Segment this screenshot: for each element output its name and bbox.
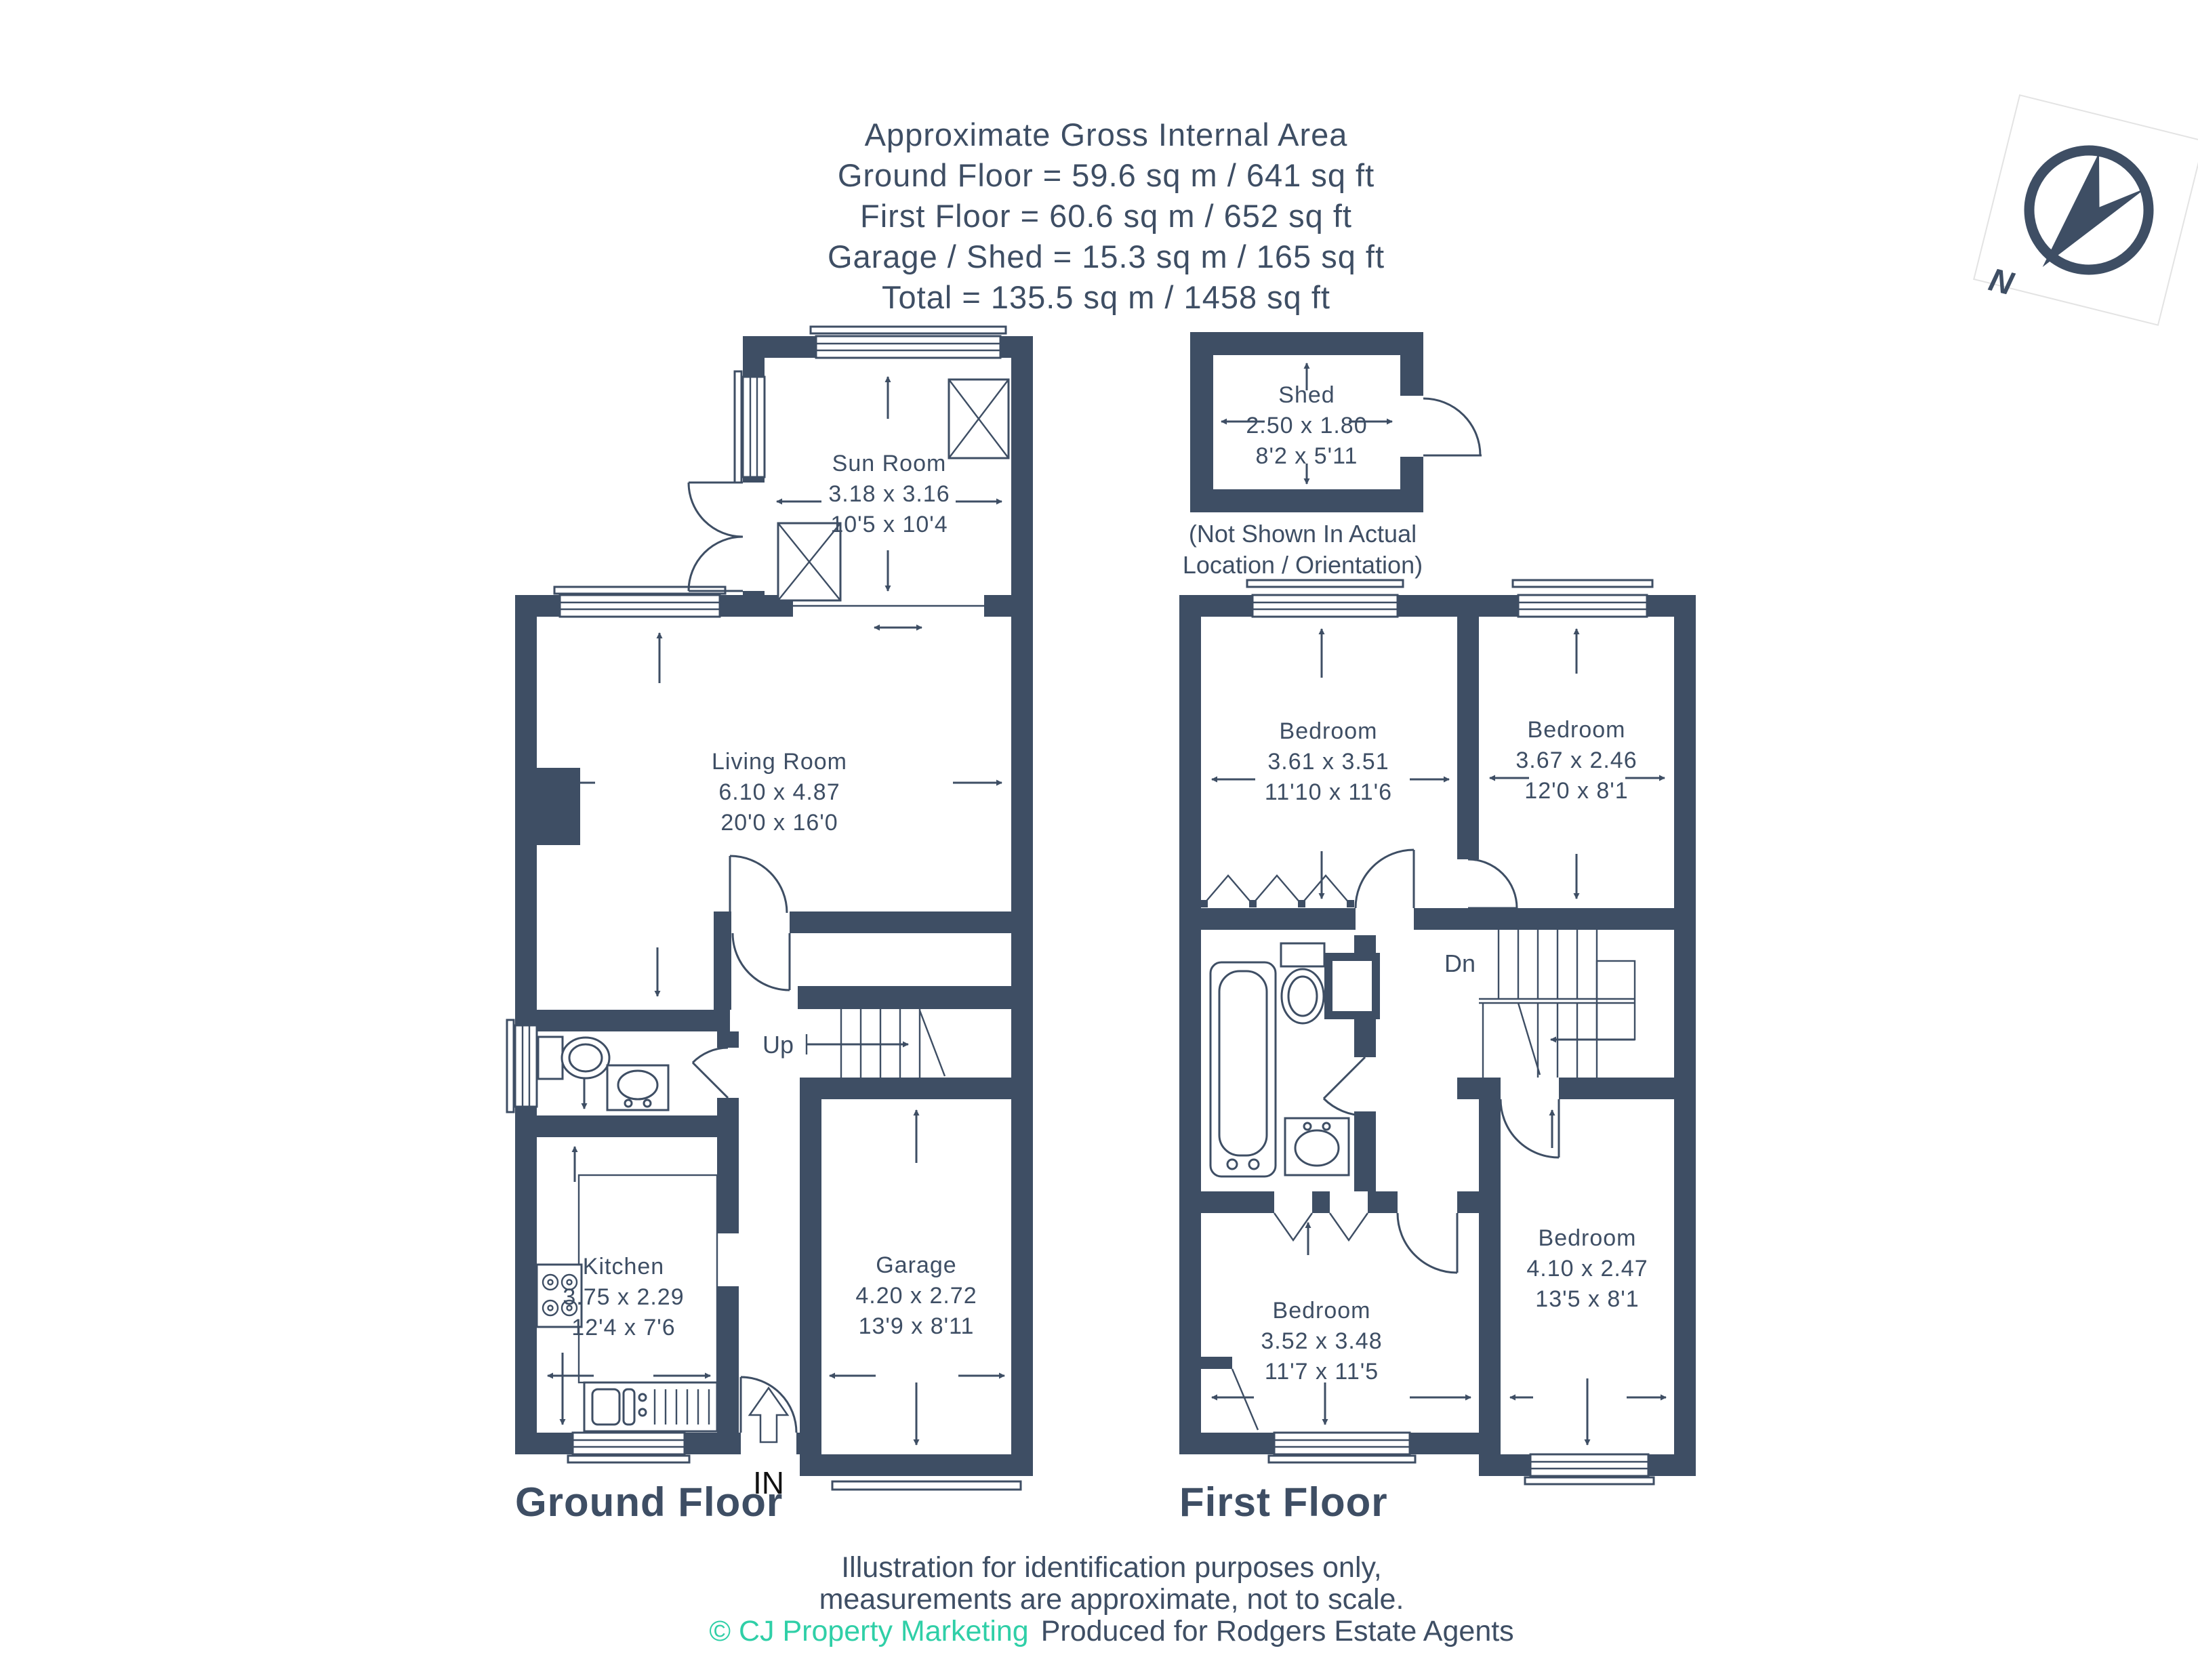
shed-dim-metric: 2.50 x 1.80	[1246, 413, 1367, 438]
toilet-icon	[538, 1037, 609, 1079]
floorplan-drawing: Approximate Gross Internal Area Ground F…	[0, 0, 2198, 1680]
shed-door-gap	[1400, 396, 1423, 457]
footer-disclaimer-line2: measurements are approximate, not to sca…	[819, 1583, 1404, 1616]
bathroom-sink-icon	[1285, 1118, 1349, 1175]
floorplan-page: Approximate Gross Internal Area Ground F…	[0, 0, 2198, 1680]
bedroom2-name: Bedroom	[1528, 717, 1626, 743]
first-floor-plan: Dn	[1179, 580, 1696, 1525]
header-garage-area: Garage / Shed = 15.3 sq m / 165 sq ft	[828, 239, 1385, 274]
bedroom3-dim-metric: 3.52 x 3.48	[1261, 1328, 1382, 1354]
bedroom2-window	[1513, 580, 1652, 617]
bedroom3-dim-imperial: 11'7 x 11'5	[1265, 1359, 1379, 1385]
shed-dim-imperial: 8'2 x 5'11	[1256, 443, 1358, 469]
bedroom3-door-arc	[1398, 1213, 1457, 1273]
bedroom1-door-arc	[1356, 850, 1414, 908]
shed-note-line2: Location / Orientation)	[1183, 551, 1423, 579]
sun-room-window-left	[735, 371, 765, 483]
ground-floor-title: Ground Floor	[515, 1479, 783, 1525]
bedroom4-window	[1525, 1454, 1654, 1484]
closet-door-fold	[1330, 1213, 1368, 1240]
kitchen-name: Kitchen	[583, 1254, 664, 1279]
garage-dim-imperial: 13'9 x 8'11	[859, 1313, 975, 1339]
kitchen-window	[568, 1433, 689, 1462]
ground-floor-plan: Up	[507, 327, 1033, 1525]
ground-floor-doors	[693, 856, 796, 1433]
toilet-icon	[1281, 943, 1324, 1023]
bedroom1-dim-metric: 3.61 x 3.51	[1267, 749, 1389, 775]
living-room-dim-imperial: 20'0 x 16'0	[720, 810, 838, 836]
bedroom3-name: Bedroom	[1273, 1298, 1371, 1324]
shed-plan: Shed 2.50 x 1.80 8'2 x 5'11 (Not Shown I…	[1183, 332, 1482, 579]
bedroom1-window	[1247, 580, 1403, 617]
living-room-dim-metric: 6.10 x 4.87	[718, 779, 840, 805]
garage-dim-metric: 4.20 x 2.72	[855, 1283, 977, 1309]
first-floor-labels: Bedroom 3.61 x 3.51 11'10 x 11'6 Bedroom…	[1261, 717, 1648, 1385]
closet-door-fold	[1274, 1213, 1312, 1240]
header-total-area: Total = 135.5 sq m / 1458 sq ft	[882, 279, 1330, 315]
wc-window	[507, 1020, 537, 1112]
sink-icon	[607, 1065, 668, 1110]
header-title: Approximate Gross Internal Area	[865, 117, 1348, 152]
sun-room-window-top	[811, 327, 1006, 358]
sun-room-dim-imperial: 10'5 x 10'4	[830, 512, 948, 537]
sun-room-dim-metric: 3.18 x 3.16	[828, 481, 950, 507]
corner-closet-door	[1232, 1369, 1258, 1430]
garage-name: Garage	[876, 1252, 956, 1278]
bedroom4-dim-imperial: 13'5 x 8'1	[1535, 1286, 1639, 1312]
kitchen-dim-imperial: 12'4 x 7'6	[571, 1315, 675, 1340]
bedroom1-name: Bedroom	[1280, 718, 1378, 744]
ground-floor-labels: Sun Room 3.18 x 3.16 10'5 x 10'4 Living …	[563, 451, 977, 1340]
living-room-name: Living Room	[712, 749, 847, 775]
stairs-down-label: Dn	[1444, 949, 1475, 977]
footer-credit-line: © CJ Property MarketingProduced for Rodg…	[709, 1615, 1513, 1647]
garage-door	[832, 1481, 1021, 1490]
kitchen-sink-icon	[584, 1382, 717, 1431]
bedroom1-dim-imperial: 11'10 x 11'6	[1265, 779, 1392, 805]
footer-disclaimer-line1: Illustration for identification purposes…	[841, 1551, 1382, 1584]
bedroom4-dim-metric: 4.10 x 2.47	[1526, 1256, 1648, 1282]
french-doors	[689, 483, 765, 591]
compass-icon: N	[1970, 95, 2198, 339]
hall-door-arc	[733, 933, 790, 990]
footer-copyright: © CJ Property Marketing	[709, 1615, 1028, 1647]
chimney-breast	[537, 768, 580, 845]
airing-cupboard	[1328, 957, 1376, 1015]
shed-name: Shed	[1278, 382, 1335, 408]
wc-fixtures	[538, 1037, 668, 1110]
shed-note-line1: (Not Shown In Actual	[1189, 520, 1417, 548]
rooflight-icon	[949, 380, 1009, 458]
stairs-down: Dn	[1444, 930, 1635, 1078]
bedroom4-name: Bedroom	[1539, 1225, 1637, 1251]
header-first-area: First Floor = 60.6 sq m / 652 sq ft	[860, 198, 1352, 234]
sun-room-name: Sun Room	[832, 451, 947, 476]
bedroom3-window	[1269, 1433, 1415, 1462]
kitchen-dim-metric: 3.75 x 2.29	[563, 1284, 684, 1310]
living-door-arc	[730, 856, 787, 913]
stairs-up: Up	[762, 1009, 945, 1078]
footer: Illustration for identification purposes…	[709, 1551, 1513, 1647]
bedroom2-dim-imperial: 12'0 x 8'1	[1524, 778, 1628, 804]
wardrobe-icon	[1200, 876, 1354, 907]
first-floor-title: First Floor	[1179, 1479, 1388, 1525]
stairs-up-label: Up	[762, 1031, 794, 1059]
bathroom-fixtures	[1210, 943, 1376, 1176]
bedroom2-dim-metric: 3.67 x 2.46	[1515, 747, 1637, 773]
header: Approximate Gross Internal Area Ground F…	[828, 117, 1385, 315]
bedroom4-door-arc	[1501, 1099, 1559, 1157]
footer-produced-for: Produced for Rodgers Estate Agents	[1041, 1615, 1514, 1647]
bathtub-icon	[1210, 962, 1276, 1176]
shed-door-arc	[1423, 398, 1480, 455]
header-ground-area: Ground Floor = 59.6 sq m / 641 sq ft	[838, 157, 1375, 193]
